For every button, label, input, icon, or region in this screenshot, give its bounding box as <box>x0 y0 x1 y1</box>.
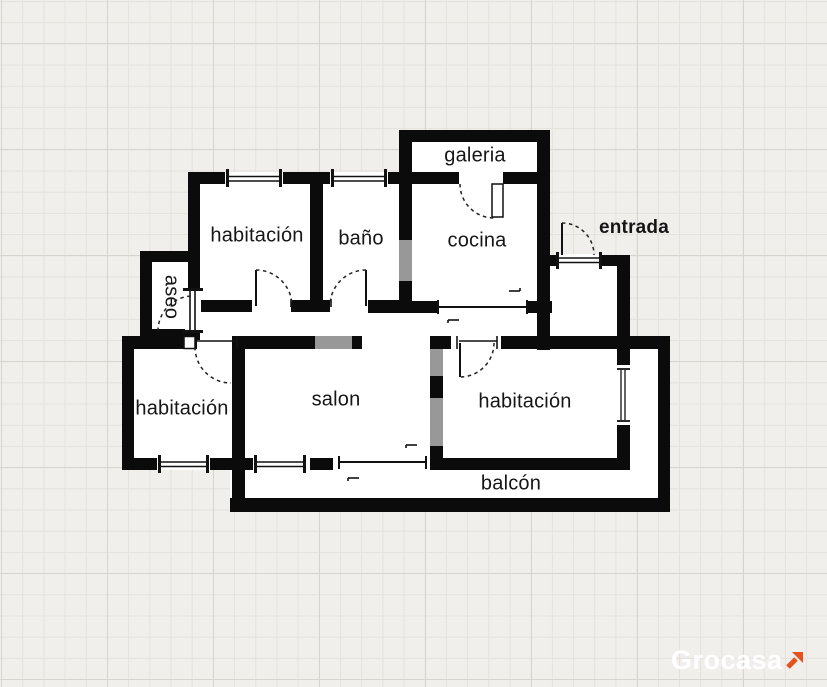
wall <box>658 340 670 512</box>
room-label-balcon: balcón <box>481 473 541 496</box>
wall <box>190 300 252 312</box>
arrow-up-right-icon <box>785 646 803 677</box>
room-label-habitacion-right: habitación <box>478 391 571 414</box>
wall <box>430 458 630 470</box>
wall <box>232 336 362 349</box>
wall <box>407 172 459 184</box>
wall <box>501 336 670 349</box>
floorplan: galeria habitación baño cocina entrada a… <box>0 0 827 687</box>
room-label-bano: baño <box>338 228 383 251</box>
wall <box>503 172 538 184</box>
wall <box>310 458 333 470</box>
room-label-salon: salon <box>312 389 361 412</box>
wall <box>399 301 438 313</box>
wall <box>528 301 552 313</box>
room-label-habitacion-left: habitación <box>135 398 228 421</box>
wall <box>122 458 157 470</box>
wall <box>399 130 412 313</box>
wall <box>310 183 323 307</box>
room-label-cocina: cocina <box>447 230 506 253</box>
wall <box>430 336 443 470</box>
wall <box>550 255 559 266</box>
wall <box>617 255 630 470</box>
wall <box>210 458 253 470</box>
wall <box>291 300 330 312</box>
wall <box>537 130 550 350</box>
room-label-aseo: aseo <box>160 275 183 319</box>
room-label-galeria: galeria <box>444 145 505 168</box>
room-label-entrada: entrada <box>599 217 669 239</box>
wall <box>140 251 152 340</box>
brand-logo: Grocasa <box>671 645 803 677</box>
wall <box>399 130 548 142</box>
room-label-habitacion-top: habitación <box>210 225 303 248</box>
wall <box>140 251 200 262</box>
wall <box>122 336 134 470</box>
wall <box>388 172 406 184</box>
wall <box>230 498 670 512</box>
wall <box>232 336 245 512</box>
brand-name: Grocasa <box>671 645 783 676</box>
